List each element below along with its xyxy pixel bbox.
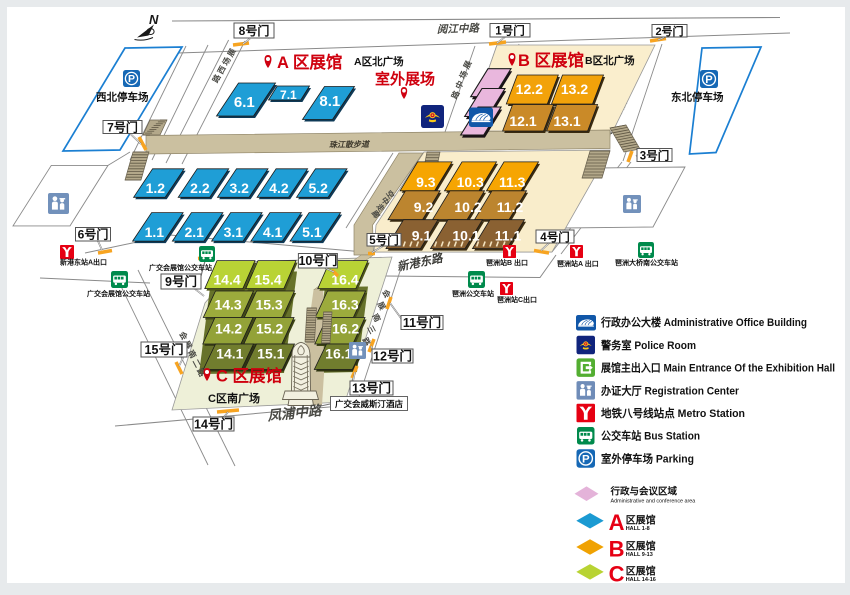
svg-text:8号门: 8号门 xyxy=(239,23,270,38)
svg-text:11.1: 11.1 xyxy=(495,228,522,244)
svg-text:14.2: 14.2 xyxy=(215,321,242,337)
svg-text:5.2: 5.2 xyxy=(308,180,328,196)
svg-text:公交车站 Bus Station: 公交车站 Bus Station xyxy=(601,429,700,443)
svg-text:B区北广场: B区北广场 xyxy=(585,54,635,67)
svg-text:地铁八号线站点 Metro Station: 地铁八号线站点 Metro Station xyxy=(601,406,745,420)
svg-text:C: C xyxy=(609,561,625,586)
svg-text:新港东站A出口: 新港东站A出口 xyxy=(60,258,107,267)
svg-text:1号门: 1号门 xyxy=(495,24,524,38)
svg-text:4.1: 4.1 xyxy=(263,224,283,240)
svg-text:C区南广场: C区南广场 xyxy=(208,391,260,405)
svg-text:9.2: 9.2 xyxy=(414,199,434,215)
svg-text:琶洲公交车站: 琶洲公交车站 xyxy=(452,289,494,298)
svg-text:琶洲站B 出口: 琶洲站B 出口 xyxy=(486,258,528,267)
svg-text:15.2: 15.2 xyxy=(256,321,283,337)
svg-text:13.1: 13.1 xyxy=(553,113,580,129)
svg-text:2号门: 2号门 xyxy=(655,24,683,38)
svg-text:7.1: 7.1 xyxy=(280,88,297,102)
svg-text:广交会展馆公交车站: 广交会展馆公交车站 xyxy=(149,263,212,272)
svg-text:阅江中路: 阅江中路 xyxy=(437,21,481,36)
svg-text:7号门: 7号门 xyxy=(107,119,138,134)
svg-text:展馆主出入口 Main Entrance Of the Ex: 展馆主出入口 Main Entrance Of the Exhibition H… xyxy=(600,361,835,375)
svg-text:行政办公大楼 Administrative Office B: 行政办公大楼 Administrative Office Building xyxy=(600,315,807,329)
svg-text:5.1: 5.1 xyxy=(302,224,322,240)
svg-text:广交会威斯汀酒店: 广交会威斯汀酒店 xyxy=(335,399,404,409)
svg-text:16.2: 16.2 xyxy=(332,321,359,337)
svg-text:14.1: 14.1 xyxy=(216,346,243,362)
svg-text:A: A xyxy=(609,510,625,535)
svg-text:行政与会议区域: 行政与会议区域 xyxy=(610,485,678,497)
svg-text:15号门: 15号门 xyxy=(145,342,184,357)
svg-text:1.2: 1.2 xyxy=(146,180,166,196)
svg-text:室外停车场 Parking: 室外停车场 Parking xyxy=(601,451,694,465)
svg-text:P: P xyxy=(705,74,713,86)
svg-text:B: B xyxy=(609,537,625,562)
svg-text:13.2: 13.2 xyxy=(561,81,588,97)
svg-text:16.1: 16.1 xyxy=(325,346,352,362)
svg-text:1.1: 1.1 xyxy=(145,224,165,240)
svg-text:西北停车场: 西北停车场 xyxy=(96,91,149,104)
svg-text:HALL 9-13: HALL 9-13 xyxy=(626,552,653,558)
svg-text:3号门: 3号门 xyxy=(640,148,669,162)
svg-text:14.3: 14.3 xyxy=(214,296,241,312)
svg-text:10.2: 10.2 xyxy=(454,199,481,215)
svg-text:室外展场: 室外展场 xyxy=(375,70,435,88)
svg-text:A 区展馆: A 区展馆 xyxy=(277,52,342,72)
svg-text:N: N xyxy=(149,12,159,27)
svg-text:B 区展馆: B 区展馆 xyxy=(518,50,584,70)
svg-text:9.1: 9.1 xyxy=(412,228,432,244)
svg-text:10.1: 10.1 xyxy=(452,228,479,244)
svg-text:15.3: 15.3 xyxy=(255,296,282,312)
svg-text:C 区展馆: C 区展馆 xyxy=(216,366,282,386)
svg-text:9.3: 9.3 xyxy=(416,174,436,190)
svg-text:琶洲站A 出口: 琶洲站A 出口 xyxy=(557,259,599,268)
svg-text:东北停车场: 东北停车场 xyxy=(671,91,724,104)
svg-text:11号门: 11号门 xyxy=(403,315,441,330)
svg-text:11.3: 11.3 xyxy=(499,174,526,190)
svg-text:Administrative and conference: Administrative and conference area xyxy=(611,499,696,505)
svg-text:P: P xyxy=(582,453,590,465)
svg-text:10号门: 10号门 xyxy=(298,253,337,268)
svg-text:区展馆: 区展馆 xyxy=(626,513,656,526)
svg-text:11.2: 11.2 xyxy=(497,199,524,215)
svg-text:12号门: 12号门 xyxy=(373,348,412,363)
svg-text:14号门: 14号门 xyxy=(194,416,233,431)
svg-text:琶洲站C出口: 琶洲站C出口 xyxy=(497,295,537,304)
svg-text:3.2: 3.2 xyxy=(229,180,249,196)
svg-text:15.1: 15.1 xyxy=(257,346,284,362)
svg-text:10.3: 10.3 xyxy=(457,174,484,190)
svg-text:5号门: 5号门 xyxy=(369,233,398,247)
svg-text:A区北广场: A区北广场 xyxy=(354,55,404,68)
svg-text:珠江散步道: 珠江散步道 xyxy=(329,140,371,150)
svg-text:区展馆: 区展馆 xyxy=(626,540,656,553)
svg-text:3.1: 3.1 xyxy=(224,224,244,240)
svg-text:16.3: 16.3 xyxy=(331,296,358,312)
svg-text:办证大厅 Registration Center: 办证大厅 Registration Center xyxy=(601,383,740,397)
svg-text:6号门: 6号门 xyxy=(78,227,109,242)
svg-text:琶洲大桥南公交车站: 琶洲大桥南公交车站 xyxy=(615,258,678,267)
svg-text:6.1: 6.1 xyxy=(234,94,255,111)
svg-text:2.1: 2.1 xyxy=(184,224,204,240)
svg-text:4.2: 4.2 xyxy=(269,180,289,196)
svg-text:HALL 14-16: HALL 14-16 xyxy=(626,577,656,583)
svg-text:4号门: 4号门 xyxy=(540,230,569,244)
svg-text:2.2: 2.2 xyxy=(190,180,210,196)
svg-text:8.1: 8.1 xyxy=(319,93,340,110)
svg-text:HALL 1-8: HALL 1-8 xyxy=(626,526,650,532)
svg-text:14.4: 14.4 xyxy=(213,271,240,287)
svg-text:9号门: 9号门 xyxy=(165,274,197,289)
svg-text:区展馆: 区展馆 xyxy=(626,564,656,577)
svg-text:12.1: 12.1 xyxy=(509,113,536,129)
svg-text:13号门: 13号门 xyxy=(352,380,391,395)
svg-text:15.4: 15.4 xyxy=(254,271,281,287)
svg-text:12.2: 12.2 xyxy=(516,81,543,97)
svg-text:广交会展馆公交车站: 广交会展馆公交车站 xyxy=(87,289,150,298)
svg-text:警务室 Police Room: 警务室 Police Room xyxy=(600,338,696,352)
svg-text:P: P xyxy=(128,73,135,85)
